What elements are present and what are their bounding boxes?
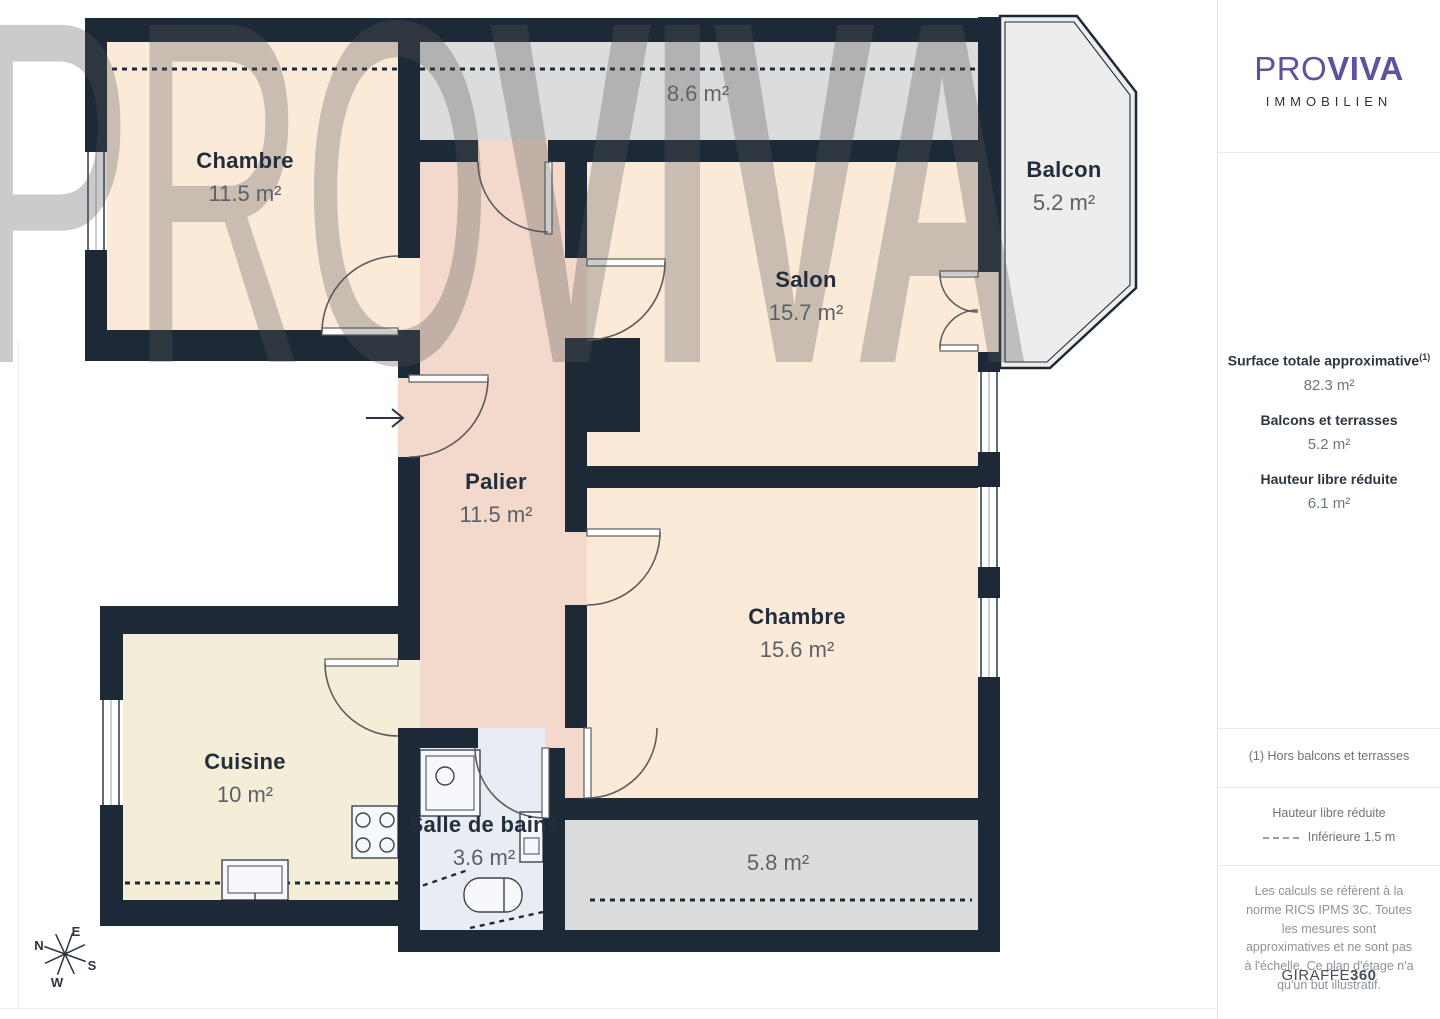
metric-value: 82.3 m² (1218, 377, 1440, 394)
dashed-line-icon (1263, 837, 1299, 839)
sidebar-divider (1218, 787, 1440, 788)
footnote: (1) Hors balcons et terrasses (1218, 749, 1440, 763)
metric-reduced-height: Hauteur libre réduite 6.1 m² (1218, 471, 1440, 512)
logo-wordmark: PROVIVA (1218, 52, 1440, 85)
metric-total-surface: Surface totale approximative(1) 82.3 m² (1218, 352, 1440, 394)
page-border-left (18, 340, 19, 1008)
compass-s: S (88, 958, 97, 973)
metric-label-text: Surface totale approximative (1228, 353, 1419, 369)
metric-value: 5.2 m² (1218, 436, 1440, 453)
logo-pro: PRO (1254, 50, 1327, 87)
metric-label-text: Hauteur libre réduite (1261, 471, 1398, 487)
sidebar-divider (1218, 728, 1440, 729)
compass-n: N (34, 938, 43, 953)
metric-label-text: Balcons et terrasses (1261, 412, 1398, 428)
window (978, 487, 1000, 567)
metric-balconies: Balcons et terrasses 5.2 m² (1218, 412, 1440, 453)
logo-subtitle: IMMOBILIEN (1218, 94, 1440, 109)
stove-icon (352, 806, 398, 858)
window (978, 598, 1000, 677)
metric-label-sup: (1) (1419, 352, 1430, 362)
sidebar: PROVIVA IMMOBILIEN Surface totale approx… (1217, 0, 1440, 1019)
watermark-text: PROVIVA (0, 0, 1027, 467)
compass-e: E (72, 924, 81, 939)
wc-icon (464, 878, 522, 912)
metric-label: Balcons et terrasses (1218, 412, 1440, 428)
shower-icon (420, 750, 480, 816)
floor-plan-svg: N E S W PROVIVA (0, 0, 1217, 1019)
sidebar-divider (1218, 865, 1440, 866)
compass-icon: N E S W (34, 924, 96, 990)
sidebar-divider (1218, 152, 1440, 153)
brand-name: GIRAFFE (1281, 967, 1350, 984)
proviva-logo: PROVIVA IMMOBILIEN (1218, 52, 1440, 109)
giraffe360-brand: GIRAFFE360 (1218, 967, 1440, 984)
toilet-tank-icon (520, 812, 543, 862)
legend-row: Inférieure 1.5 m (1218, 830, 1440, 844)
surface-metrics: Surface totale approximative(1) 82.3 m² … (1218, 352, 1440, 530)
sink-icon (222, 860, 288, 900)
metric-value: 6.1 m² (1218, 495, 1440, 512)
legend-title: Hauteur libre réduite (1218, 806, 1440, 820)
compass-w: W (51, 975, 64, 990)
logo-viva: VIVA (1327, 50, 1404, 87)
reduced-height-legend: Hauteur libre réduite Inférieure 1.5 m (1218, 806, 1440, 844)
window (100, 700, 123, 805)
metric-label: Surface totale approximative(1) (1218, 352, 1440, 369)
brand-suffix: 360 (1350, 967, 1377, 984)
metric-label: Hauteur libre réduite (1218, 471, 1440, 487)
legend-item: Inférieure 1.5 m (1308, 830, 1396, 844)
